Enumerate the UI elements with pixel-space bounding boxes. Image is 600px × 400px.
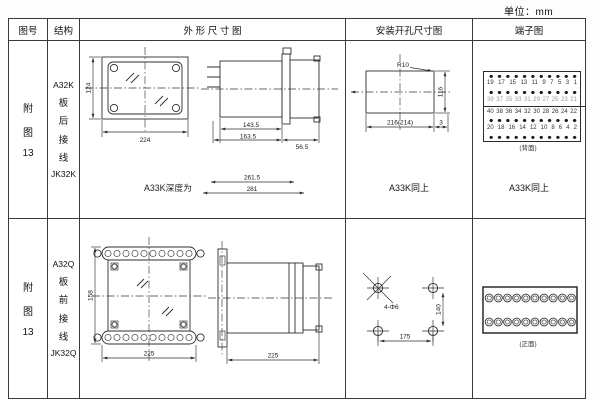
row1-install-cell: R10 116 216(214) 3 A33K同上 xyxy=(346,41,473,219)
terminal-number: 24 xyxy=(561,110,568,116)
struct-line: 接 xyxy=(59,132,69,146)
row2-structure: A32Q 板 前 接 线 JK32Q xyxy=(48,219,79,398)
terminal-number: 6 xyxy=(559,126,562,132)
dim-label-depth-inner: 143.5 xyxy=(243,122,260,129)
fig-line: 附 xyxy=(23,100,33,115)
dim-label-note-outer: 281 xyxy=(247,186,258,193)
terminal-number: 4 xyxy=(566,126,569,132)
struct-line: JK32Q xyxy=(51,348,77,358)
row1-terminal-cell: 191715131197531 39373533312927252321 403… xyxy=(473,41,585,219)
header-fig-cell: 图号 xyxy=(9,19,48,41)
header-outline-cell: 外 形 尺 寸 图 xyxy=(80,19,346,41)
dim-label-cutout-height: 116 xyxy=(438,86,445,97)
fig-line: 13 xyxy=(22,327,33,338)
terminal-divider xyxy=(484,106,585,107)
terminal-dot-row xyxy=(487,135,577,140)
terminal-caption-front: (正面) xyxy=(483,338,573,348)
terminal-number: 35 xyxy=(506,98,513,104)
row1-fig-number: 附 图 13 xyxy=(9,41,47,218)
terminal-number: 22 xyxy=(570,110,577,116)
row2-outline-cell: 158 225 xyxy=(80,219,346,398)
terminal-number: 39 xyxy=(487,98,494,104)
relay-side-view: 225 xyxy=(208,241,333,364)
terminal-number: 25 xyxy=(552,98,559,104)
terminal-number: 36 xyxy=(506,110,513,116)
row2-outline-drawing: 158 225 xyxy=(80,219,345,397)
terminal-number: 17 xyxy=(498,81,505,87)
struct-line: 板 xyxy=(59,274,69,288)
terminal-number-row: 2018161412108642 xyxy=(487,126,577,132)
terminal-number: 10 xyxy=(541,126,548,132)
terminal-number: 37 xyxy=(496,98,503,104)
dim-label-flange-depth: 56.5 xyxy=(296,144,309,151)
terminal-same-as-above-note: A33K同上 xyxy=(473,181,585,194)
dim-label-note-inner: 261.5 xyxy=(244,175,261,182)
relay-front-view: 124 224 xyxy=(85,47,201,144)
terminal-number: 5 xyxy=(558,81,561,87)
struct-line: 接 xyxy=(59,311,69,325)
row2-fig-cell: 附 图 13 xyxy=(9,219,48,398)
terminal-number: 8 xyxy=(551,126,554,132)
terminal-number: 9 xyxy=(542,81,545,87)
terminal-number: 20 xyxy=(487,126,494,132)
terminal-number-row: 40383634323028262422 xyxy=(487,110,577,116)
terminal-number: 38 xyxy=(496,110,503,116)
struct-line: 板 xyxy=(59,95,69,109)
unit-note: 单位：mm xyxy=(504,3,553,18)
dim-label-hole-hspacing: 175 xyxy=(400,334,411,341)
terminal-number: 28 xyxy=(543,110,550,116)
terminal-number: 1 xyxy=(574,81,577,87)
row2-install-drawing: 4-Φ6 140 175 xyxy=(346,219,472,397)
mounting-holes-drawing: 4-Φ6 140 175 xyxy=(363,273,444,346)
row2-install-cell: 4-Φ6 140 175 xyxy=(346,219,473,398)
row2-fig-number: 附 图 13 xyxy=(9,219,47,398)
fig-line: 图 xyxy=(23,124,33,139)
terminal-dot-row xyxy=(487,118,577,123)
fig-line: 附 xyxy=(23,279,33,294)
dim-label-front-width: 224 xyxy=(140,137,151,144)
struct-line: 线 xyxy=(59,150,69,164)
terminal-number: 2 xyxy=(574,126,577,132)
struct-line: 后 xyxy=(59,113,69,127)
header-struct-cell: 结构 xyxy=(48,19,80,41)
terminal-number: 19 xyxy=(487,81,494,87)
terminal-dot-row xyxy=(487,90,577,95)
terminal-block-front-drawing xyxy=(473,219,584,397)
dim-label-front-width: 225 xyxy=(144,351,155,358)
struct-line: A32Q xyxy=(53,259,75,269)
terminal-number: 29 xyxy=(533,98,540,104)
terminal-number: 13 xyxy=(520,81,527,87)
terminal-number: 15 xyxy=(509,81,516,87)
terminal-number: 30 xyxy=(533,110,540,116)
terminal-number: 18 xyxy=(498,126,505,132)
terminal-number: 40 xyxy=(487,110,494,116)
fig-line: 13 xyxy=(22,148,33,159)
terminal-number: 12 xyxy=(530,126,537,132)
header-terminal-cell: 端子图 xyxy=(473,19,585,41)
dim-label-edge-gap: 3 xyxy=(439,120,443,127)
struct-line: A32K xyxy=(53,80,74,90)
install-same-as-above-note: A33K同上 xyxy=(346,181,472,194)
terminal-number: 16 xyxy=(508,126,515,132)
terminal-number: 14 xyxy=(519,126,526,132)
row1-outline-cell: 124 224 xyxy=(80,41,346,219)
dim-label-front-height: 124 xyxy=(86,82,93,93)
relay-side-view: 143.5 163.5 56.5 xyxy=(201,48,338,151)
terminal-number: 23 xyxy=(561,98,568,104)
struct-line: JK32K xyxy=(51,169,76,179)
row1-struct-cell: A32K 板 后 接 线 JK32K xyxy=(48,41,80,219)
terminal-number: 33 xyxy=(515,98,522,104)
fig-line: 图 xyxy=(23,303,33,318)
struct-line: 前 xyxy=(59,292,69,306)
spec-table: 图号 结构 外 形 尺 寸 图 安装开孔尺寸图 端子图 附 图 13 A32K … xyxy=(8,18,586,399)
cutout-drawing: R10 116 216(214) 3 xyxy=(351,54,450,132)
row1-fig-cell: 附 图 13 xyxy=(9,41,48,219)
row1-outline-drawing: 124 224 xyxy=(80,41,345,218)
terminal-number: 27 xyxy=(543,98,550,104)
terminal-number: 3 xyxy=(566,81,569,87)
dim-label-hole-spec: 4-Φ6 xyxy=(384,304,399,311)
dim-label-side-depth: 225 xyxy=(268,353,279,360)
terminal-caption-rear: (背面) xyxy=(483,142,573,152)
terminal-number: 11 xyxy=(532,81,538,87)
struct-line: 线 xyxy=(59,329,69,343)
terminal-block-rear: 191715131197531 39373533312927252321 403… xyxy=(483,71,581,142)
relay-front-view: 158 225 xyxy=(88,237,208,362)
terminal-dot-row xyxy=(487,74,577,79)
row1-structure: A32K 板 后 接 线 JK32K xyxy=(48,41,79,218)
dim-label-depth-outer: 163.5 xyxy=(240,134,257,141)
terminal-number: 26 xyxy=(552,110,559,116)
terminal-number: 34 xyxy=(515,110,522,116)
depth-note: A33K深度为 261.5 281 xyxy=(144,175,304,194)
depth-note-label: A33K深度为 xyxy=(144,182,192,193)
terminal-number-row: 191715131197531 xyxy=(487,81,577,87)
dim-label-cutout-width: 216(214) xyxy=(387,120,413,127)
terminal-number-row: 39373533312927252321 xyxy=(487,98,577,104)
header-install-cell: 安装开孔尺寸图 xyxy=(346,19,473,41)
terminal-number: 31 xyxy=(524,98,531,104)
row2-terminal-cell: (正面) xyxy=(473,219,585,398)
dim-label-front-height: 158 xyxy=(88,290,95,301)
dim-label-corner-radius: R10 xyxy=(397,62,409,69)
row2-struct-cell: A32Q 板 前 接 线 JK32Q xyxy=(48,219,80,398)
terminal-number: 32 xyxy=(524,110,531,116)
dim-label-hole-vspacing: 140 xyxy=(436,304,443,315)
terminal-number: 7 xyxy=(550,81,553,87)
terminal-screws xyxy=(485,287,576,333)
terminal-number: 21 xyxy=(570,98,577,104)
